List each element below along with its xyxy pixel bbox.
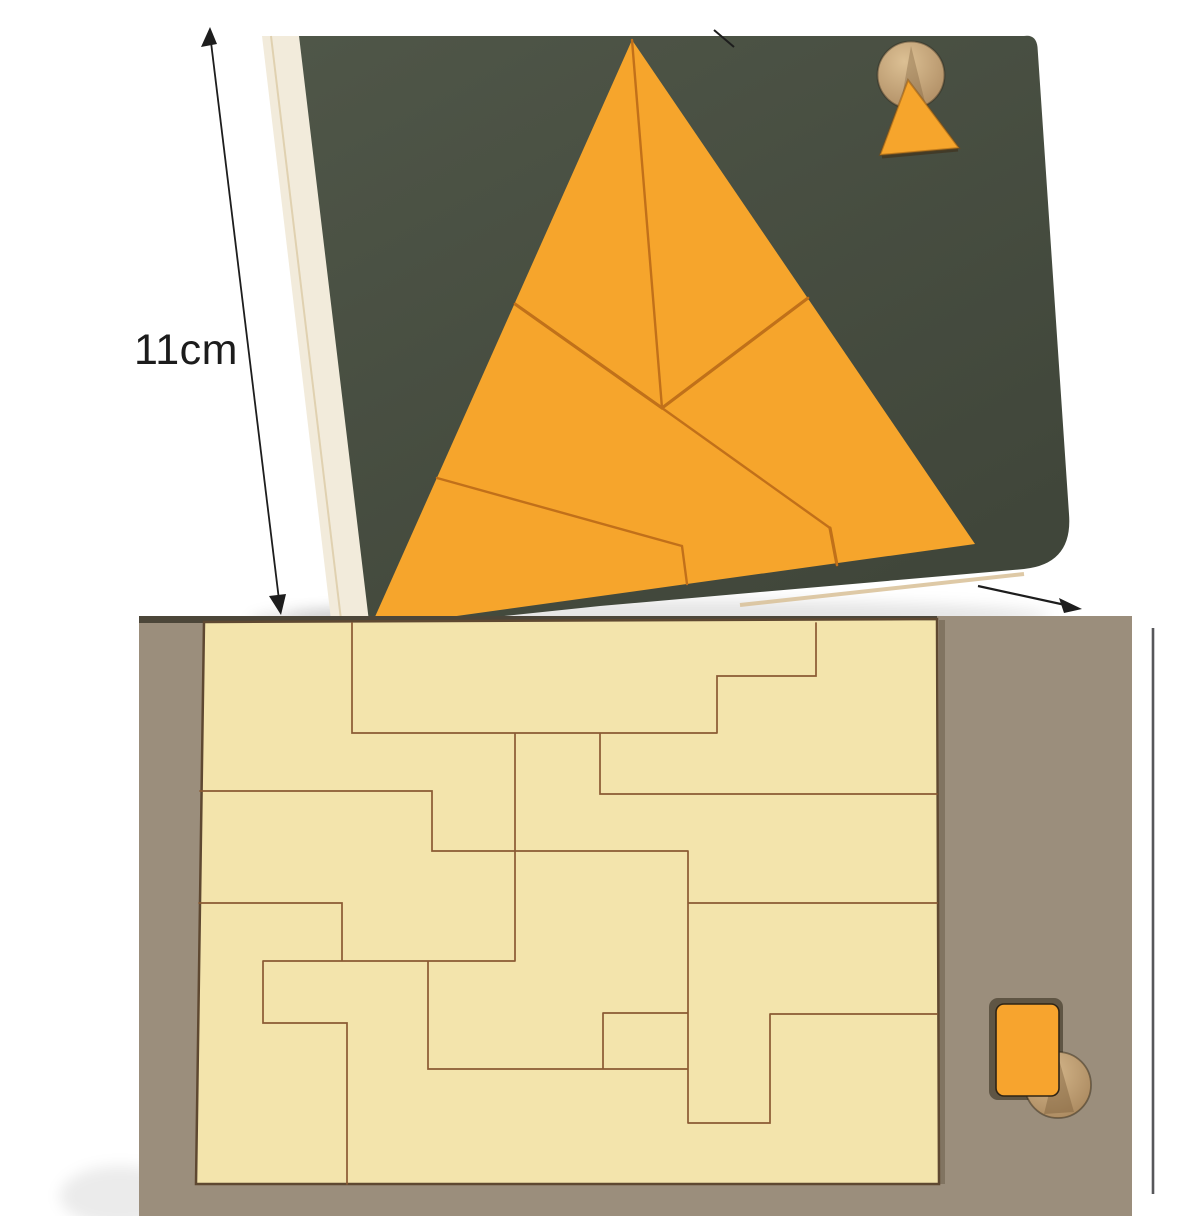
dimension-label: 11cm: [134, 329, 238, 372]
top-product-photo: [201, 27, 1082, 634]
bottom-product-photo: [60, 616, 1153, 1216]
photo-canvas: [40, 16, 1200, 1216]
pentomino-field: [196, 619, 939, 1184]
dimension-arrow-bottom: [269, 594, 286, 615]
orange-rectangle-piece: [996, 1004, 1059, 1096]
bottom-dimension-line: [978, 586, 1070, 606]
puzzle-field: [196, 619, 939, 1184]
dimension-line: [210, 34, 280, 608]
dimension-arrow-top: [201, 27, 217, 47]
product-photo-collage: 11cm: [40, 16, 1200, 1216]
bottom-dimension-arrow: [1059, 598, 1082, 613]
